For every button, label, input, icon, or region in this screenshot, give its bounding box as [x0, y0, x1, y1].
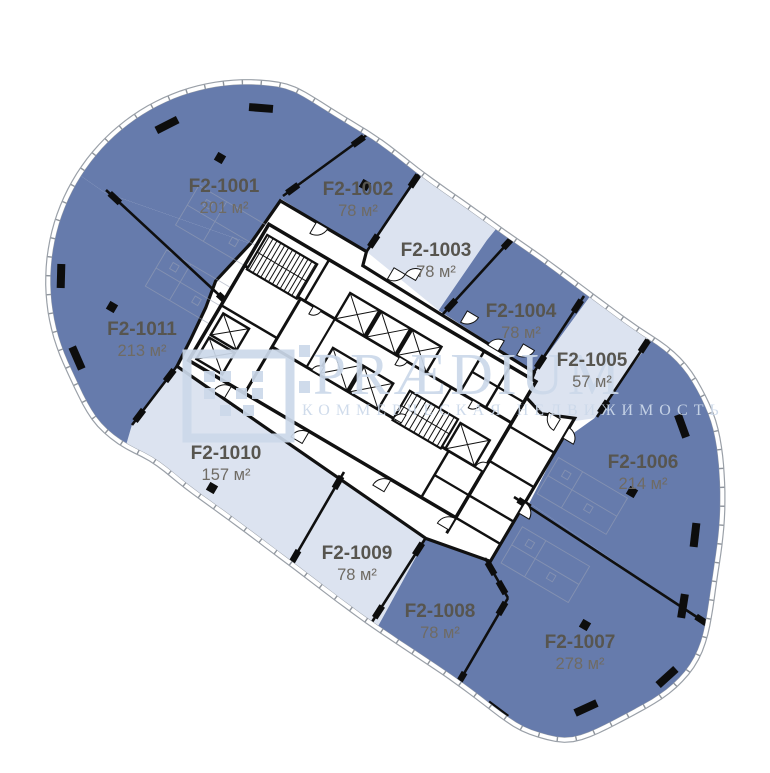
- svg-text:201 м²: 201 м²: [200, 199, 249, 217]
- svg-text:F2-1004: F2-1004: [486, 301, 557, 322]
- svg-text:F2-1003: F2-1003: [401, 240, 472, 261]
- svg-text:F2-1008: F2-1008: [405, 601, 476, 622]
- svg-text:78 м²: 78 м²: [337, 566, 377, 584]
- svg-text:78 м²: 78 м²: [501, 324, 541, 342]
- svg-text:F2-1005: F2-1005: [557, 350, 628, 371]
- svg-text:78 м²: 78 м²: [420, 624, 460, 642]
- svg-text:213 м²: 213 м²: [118, 342, 167, 360]
- svg-text:F2-1010: F2-1010: [191, 443, 262, 464]
- svg-text:F2-1009: F2-1009: [322, 543, 393, 564]
- svg-text:278 м²: 278 м²: [556, 655, 605, 673]
- svg-text:78 м²: 78 м²: [416, 263, 456, 281]
- svg-text:57 м²: 57 м²: [572, 373, 612, 391]
- svg-text:F2-1001: F2-1001: [189, 176, 260, 197]
- svg-text:214 м²: 214 м²: [619, 475, 668, 493]
- svg-text:F2-1006: F2-1006: [608, 452, 679, 473]
- svg-text:F2-1002: F2-1002: [323, 179, 394, 200]
- svg-text:157 м²: 157 м²: [202, 466, 251, 484]
- svg-text:F2-1011: F2-1011: [107, 319, 177, 340]
- svg-text:КОММЕРЧЕСКАЯ НЕДВИЖИМОСТЬ: КОММЕРЧЕСКАЯ НЕДВИЖИМОСТЬ: [302, 402, 725, 419]
- svg-text:F2-1007: F2-1007: [545, 632, 616, 653]
- svg-text:78 м²: 78 м²: [338, 202, 378, 220]
